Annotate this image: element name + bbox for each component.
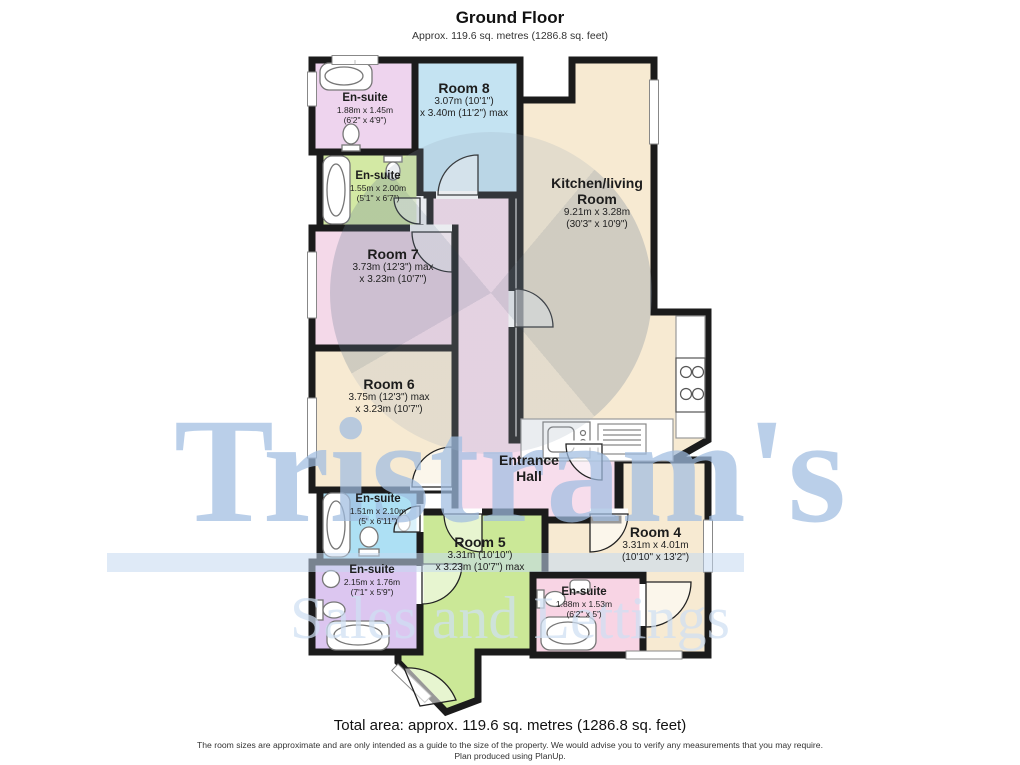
room-dims: x 3.23m (10'7") max bbox=[404, 562, 556, 574]
room-dims: (7'1" x 5'9") bbox=[322, 587, 422, 597]
room6-label: Room 6 3.75m (12'3") max x 3.23m (10'7") bbox=[314, 376, 464, 416]
hob-icon bbox=[676, 358, 705, 412]
room-dims: (10'10" x 13'2") bbox=[578, 552, 733, 564]
room-dims: 9.21m x 3.28m bbox=[518, 207, 676, 219]
room-name: En-suite bbox=[330, 170, 426, 183]
room-name: Room 5 bbox=[404, 534, 556, 550]
toilet-icon bbox=[316, 600, 345, 620]
window bbox=[626, 651, 682, 659]
room-name: Room 4 bbox=[578, 524, 733, 540]
ensuite3-label: En-suite 1.51m x 2.10m (5' x 6'11") bbox=[330, 493, 426, 527]
room-dims: 1.88m x 1.53m bbox=[534, 599, 634, 609]
bath-icon bbox=[327, 621, 389, 650]
room-dims: 3.31m x 4.01m bbox=[578, 540, 733, 552]
room-dims: x 3.23m (10'7") bbox=[318, 274, 468, 286]
room-dims: (5'1" x 6'7") bbox=[330, 193, 426, 203]
room-dims: 1.55m x 2.00m bbox=[330, 183, 426, 193]
room-dims: (5' x 6'11") bbox=[330, 516, 426, 526]
produced-by-text: Plan produced using PlanUp. bbox=[0, 751, 1020, 761]
room-dims: (6'2" x 5') bbox=[534, 609, 634, 619]
room-dims: 3.07m (10'1") bbox=[398, 96, 530, 108]
window bbox=[308, 252, 317, 318]
plan-footer: Total area: approx. 119.6 sq. metres (12… bbox=[0, 717, 1020, 761]
room-name: Room 7 bbox=[318, 246, 468, 262]
room-dims: (30'3" x 10'9") bbox=[518, 219, 676, 231]
room-name: Room 6 bbox=[314, 376, 464, 392]
room-dims: 3.75m (12'3") max bbox=[314, 392, 464, 404]
ensuite4-label: En-suite 2.15m x 1.76m (7'1" x 5'9") bbox=[322, 564, 422, 598]
room-dims: x 3.40m (11'2") max bbox=[398, 108, 530, 120]
room-dims: 2.15m x 1.76m bbox=[322, 577, 422, 587]
door-gap bbox=[410, 225, 452, 232]
kitchen-label: Kitchen/living Room 9.21m x 3.28m (30'3"… bbox=[518, 175, 676, 231]
room-dims: x 3.23m (10'7") bbox=[314, 404, 464, 416]
room4-label: Room 4 3.31m x 4.01m (10'10" x 13'2") bbox=[578, 524, 733, 564]
ensuite5-label: En-suite 1.88m x 1.53m (6'2" x 5') bbox=[534, 586, 634, 620]
total-area-text: Total area: approx. 119.6 sq. metres (12… bbox=[0, 717, 1020, 734]
room-name: Entrance bbox=[468, 452, 590, 468]
entrance-hall-label: Entrance Hall bbox=[468, 452, 590, 484]
room-name: En-suite bbox=[534, 586, 634, 599]
room-dims: 3.31m (10'10") bbox=[404, 550, 556, 562]
room-name: Room 8 bbox=[398, 80, 530, 96]
room-name: En-suite bbox=[330, 493, 426, 506]
room-name: Kitchen/living bbox=[518, 175, 676, 191]
vent-grill-icon bbox=[598, 424, 646, 454]
disclaimer-text: The room sizes are approximate and are o… bbox=[0, 740, 1020, 750]
bath-icon bbox=[541, 617, 596, 650]
room-dims: 1.51m x 2.10m bbox=[330, 506, 426, 516]
room-name: Room bbox=[518, 191, 676, 207]
toilet-icon bbox=[342, 124, 360, 151]
room-name: Hall bbox=[468, 468, 590, 484]
bath-icon bbox=[320, 63, 372, 90]
ensuite2-label: En-suite 1.55m x 2.00m (5'1" x 6'7") bbox=[330, 170, 426, 204]
room8-label: Room 8 3.07m (10'1") x 3.40m (11'2") max bbox=[398, 80, 530, 120]
toilet-icon bbox=[359, 527, 379, 556]
room5-label: Room 5 3.31m (10'10") x 3.23m (10'7") ma… bbox=[404, 534, 556, 574]
room-name: En-suite bbox=[322, 564, 422, 577]
window bbox=[650, 80, 659, 144]
room-dims: 3.73m (12'3") max bbox=[318, 262, 468, 274]
room7-label: Room 7 3.73m (12'3") max x 3.23m (10'7") bbox=[318, 246, 468, 286]
floor-plan-page: Ground Floor Approx. 119.6 sq. metres (1… bbox=[0, 0, 1020, 765]
